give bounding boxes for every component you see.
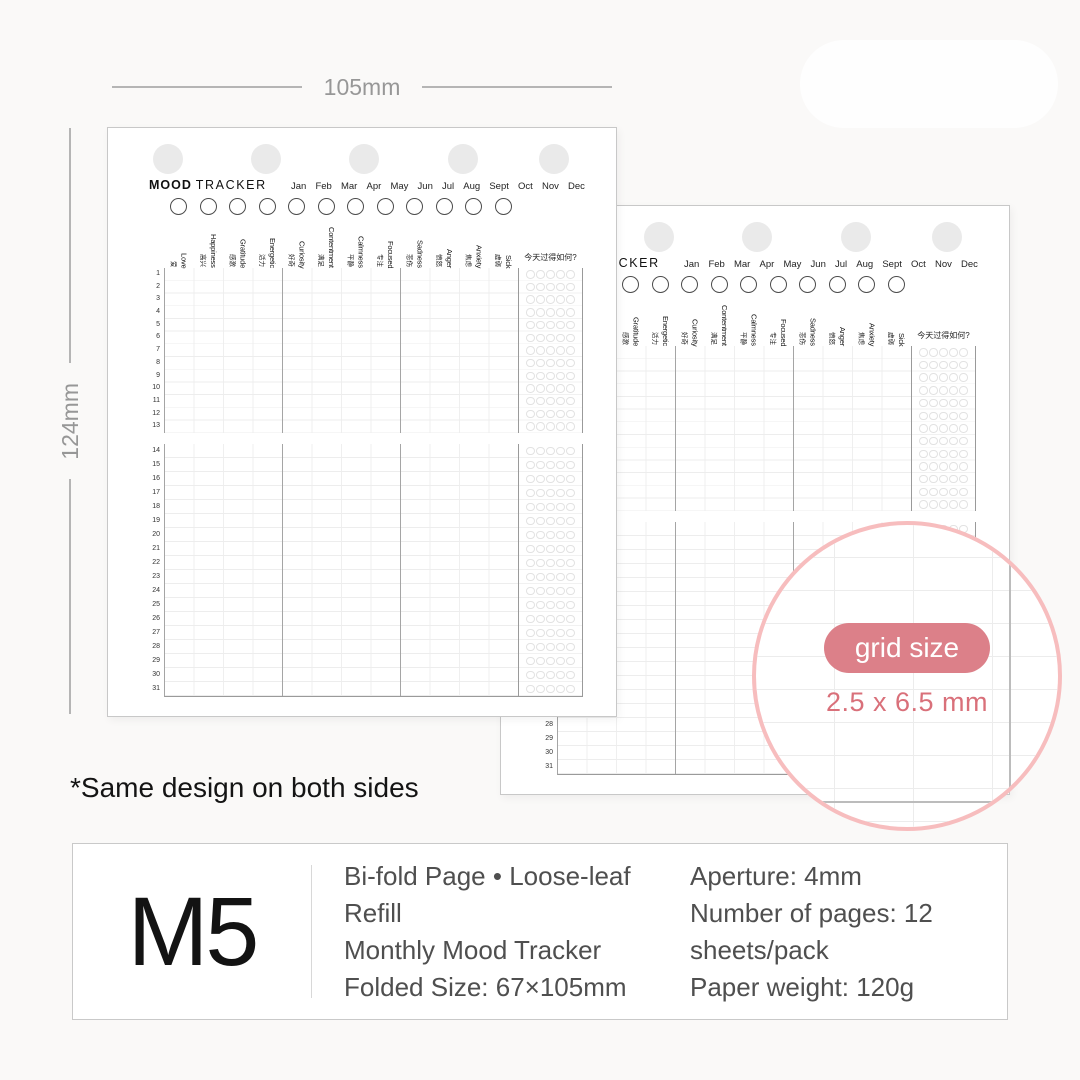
rating-circle — [566, 559, 575, 568]
mood-label-row: 爱Love高兴Happiness感激Gratitude活力Energetic好奇… — [164, 215, 518, 268]
punch-hole — [841, 222, 871, 252]
rating-circle — [556, 397, 565, 406]
rating-circle — [959, 475, 968, 484]
mood-column-label: 满足Contentment — [710, 305, 729, 346]
rating-circle — [949, 386, 958, 395]
rating-circle — [536, 475, 545, 484]
day-rating-circles — [912, 498, 975, 511]
day-number: 15 — [142, 458, 160, 472]
punch-hole — [448, 144, 478, 174]
rating-circle — [536, 545, 545, 554]
rating-circle — [546, 334, 555, 343]
month-circle — [858, 276, 875, 293]
rating-circle — [556, 334, 565, 343]
rating-circle — [929, 412, 938, 421]
rating-circle — [919, 361, 928, 370]
rating-circle — [526, 461, 535, 470]
mood-label-en: Love — [179, 253, 188, 268]
day-rating-column — [518, 444, 583, 697]
dimension-line — [422, 86, 612, 88]
rating-circle — [546, 422, 555, 431]
mood-column-label: 虚弱Sick — [494, 254, 513, 268]
rating-circle — [566, 545, 575, 554]
day-rating-circles — [912, 486, 975, 499]
day-number: 30 — [142, 668, 160, 682]
rating-circle — [566, 422, 575, 431]
rating-circle — [526, 657, 535, 666]
day-number: 27 — [142, 626, 160, 640]
mood-label-zh: 好奇 — [287, 254, 297, 267]
rating-circle — [566, 573, 575, 582]
rating-circle — [546, 295, 555, 304]
mood-label-en: Calmness — [749, 314, 758, 346]
rating-circle — [556, 295, 565, 304]
rating-circle — [939, 348, 948, 357]
mood-column-label: 高兴Happiness — [199, 234, 218, 268]
rating-circle — [546, 321, 555, 330]
rating-circle — [919, 348, 928, 357]
rating-circle — [566, 587, 575, 596]
mood-label-zh: 愤怒 — [435, 254, 445, 267]
rating-circle — [536, 573, 545, 582]
rating-circle — [546, 346, 555, 355]
rating-circle — [939, 412, 948, 421]
rating-circle — [536, 601, 545, 610]
mood-column-label: 愤怒Anger — [828, 327, 847, 346]
day-rating-circles — [519, 420, 582, 433]
magnified-grid — [756, 525, 1058, 827]
day-number: 20 — [142, 528, 160, 542]
month-label: Oct — [518, 181, 533, 192]
rating-circle — [929, 450, 938, 459]
rating-circle — [546, 475, 555, 484]
rating-circle — [919, 373, 928, 382]
day-rating-circles — [519, 458, 582, 472]
mood-label-en: Energetic — [661, 316, 670, 346]
month-circle — [495, 198, 512, 215]
day-rating-circles — [519, 268, 582, 281]
month-circle — [200, 198, 217, 215]
rating-circle — [949, 412, 958, 421]
month-label: Aug — [463, 181, 480, 192]
mood-label-en: Sadness — [415, 240, 424, 268]
rating-circle — [536, 283, 545, 292]
day-number: 12 — [142, 408, 160, 421]
rating-circle — [556, 447, 565, 456]
rating-circle — [526, 321, 535, 330]
rating-circle — [929, 386, 938, 395]
rating-circle — [536, 295, 545, 304]
rating-circle — [526, 475, 535, 484]
rating-circle — [929, 424, 938, 433]
rating-circle — [949, 424, 958, 433]
rating-circle — [566, 346, 575, 355]
rating-circle — [546, 559, 555, 568]
rating-circle — [959, 437, 968, 446]
rating-circle — [949, 500, 958, 509]
day-rating-circles — [519, 514, 582, 528]
day-number: 1 — [142, 268, 160, 281]
mood-label-en: Gratitude — [238, 239, 247, 268]
rating-circle — [959, 386, 968, 395]
rating-circle — [536, 321, 545, 330]
rating-circle — [919, 399, 928, 408]
size-code: M5 — [73, 876, 311, 988]
rating-circle — [536, 397, 545, 406]
rating-circle — [526, 410, 535, 419]
rating-circle — [546, 685, 555, 694]
punch-hole — [539, 144, 569, 174]
group-divider-line — [675, 346, 676, 511]
magnified-page-edge-vertical — [1009, 525, 1011, 801]
grid-size-value: 2.5 x 6.5 mm — [756, 687, 1058, 718]
rating-circle — [536, 422, 545, 431]
rating-circle — [556, 283, 565, 292]
rating-circle — [546, 629, 555, 638]
tracker-section-bottom: 141516171819202122232425262728293031 — [142, 444, 583, 697]
month-label: Sept — [489, 181, 509, 192]
rating-circle — [949, 462, 958, 471]
rating-circle — [526, 503, 535, 512]
rating-circle — [526, 283, 535, 292]
day-rating-circles — [519, 382, 582, 395]
mood-label-zh: 好奇 — [680, 332, 690, 345]
rating-circle — [949, 475, 958, 484]
grid-size-magnifier: grid size 2.5 x 6.5 mm — [752, 521, 1062, 831]
group-divider-line — [282, 444, 283, 696]
rating-circle — [566, 410, 575, 419]
day-number: 30 — [535, 746, 553, 760]
rating-circle — [526, 685, 535, 694]
mood-label-zh: 活力 — [651, 332, 661, 345]
day-rating-circles — [519, 542, 582, 556]
rating-circle — [929, 348, 938, 357]
month-label: Mar — [341, 181, 357, 192]
mood-column-label: 感激Gratitude — [621, 317, 640, 346]
rating-circle — [556, 503, 565, 512]
rating-circle — [919, 500, 928, 509]
punch-hole — [932, 222, 962, 252]
month-circle-row — [164, 198, 518, 215]
month-circle — [436, 198, 453, 215]
mood-column-label: 好奇Curiosity — [680, 319, 699, 346]
month-circle — [888, 276, 905, 293]
rating-circle — [536, 410, 545, 419]
rating-circle — [556, 359, 565, 368]
rating-circle — [526, 359, 535, 368]
divider — [311, 865, 312, 998]
day-number: 28 — [535, 718, 553, 732]
rating-circle — [526, 643, 535, 652]
day-rating-circles — [519, 612, 582, 626]
rating-circle — [566, 685, 575, 694]
mood-label-zh: 活力 — [258, 254, 268, 267]
day-number: 31 — [535, 760, 553, 774]
rating-circle — [949, 373, 958, 382]
rating-circle — [556, 308, 565, 317]
rating-circle — [566, 270, 575, 279]
month-circle — [377, 198, 394, 215]
rating-circle — [526, 447, 535, 456]
rating-circle — [949, 437, 958, 446]
group-divider-line — [282, 268, 283, 433]
rating-circle — [526, 559, 535, 568]
mood-column-label: 平静Calmness — [346, 236, 365, 268]
mood-label-zh: 虚弱 — [887, 332, 897, 345]
description-line: Folded Size: 67×105mm — [344, 969, 676, 1006]
rating-circle — [556, 671, 565, 680]
rating-circle — [546, 461, 555, 470]
rating-circle — [939, 500, 948, 509]
mood-label-en: Anger — [445, 249, 454, 268]
month-circle — [740, 276, 757, 293]
rating-circle — [919, 488, 928, 497]
month-label: Aug — [856, 259, 873, 270]
mood-label-zh: 感激 — [621, 332, 631, 345]
rating-circle — [919, 386, 928, 395]
day-number: 13 — [142, 420, 160, 433]
mood-column-label: 专注Focused — [769, 319, 788, 346]
month-label: Sept — [882, 259, 902, 270]
rating-circle — [959, 399, 968, 408]
group-divider-line — [400, 268, 401, 433]
mood-label-zh: 满足 — [710, 332, 720, 345]
rating-circle — [556, 587, 565, 596]
day-rating-circles — [519, 598, 582, 612]
mood-label-en: Energetic — [268, 238, 277, 268]
rating-circle — [939, 462, 948, 471]
month-row: JanFebMarAprMayJunJulAugSeptOctNovDec — [291, 181, 585, 192]
rating-circle — [546, 615, 555, 624]
rating-circle — [536, 503, 545, 512]
month-label: Jul — [442, 181, 454, 192]
tracker-grid — [164, 444, 518, 697]
month-circle — [711, 276, 728, 293]
mood-column-label: 悲伤Sadness — [405, 240, 424, 268]
mood-label-zh: 悲伤 — [405, 254, 415, 267]
magnified-page-edge-horizontal — [756, 801, 1009, 803]
rating-circle — [556, 573, 565, 582]
month-label: Mar — [734, 259, 750, 270]
dimension-line — [69, 128, 71, 363]
month-circle — [681, 276, 698, 293]
rating-circle — [566, 321, 575, 330]
day-rating-column — [518, 268, 583, 433]
tracker-page-front: MOOD TRACKERJanFebMarAprMayJunJulAugSept… — [107, 127, 617, 717]
mood-label-zh: 专注 — [376, 254, 386, 267]
rating-circle — [536, 587, 545, 596]
day-rating-circles — [519, 444, 582, 458]
mood-label-en: Calmness — [356, 236, 365, 268]
rating-circle — [526, 384, 535, 393]
month-label: Oct — [911, 259, 926, 270]
tracker-grid — [164, 268, 518, 433]
rating-circle — [526, 397, 535, 406]
rating-circle — [919, 475, 928, 484]
day-rating-circles — [519, 654, 582, 668]
mood-label-zh: 愤怒 — [828, 332, 838, 345]
mood-label-zh: 平静 — [346, 254, 356, 267]
rating-circle — [959, 424, 968, 433]
rating-circle — [566, 334, 575, 343]
rating-circle — [949, 361, 958, 370]
day-rating-circles — [519, 395, 582, 408]
mood-label-en: Anxiety — [474, 245, 483, 268]
day-rating-circles — [519, 500, 582, 514]
rating-circle — [919, 424, 928, 433]
rating-circle — [536, 447, 545, 456]
width-dimension-label: 105mm — [324, 74, 401, 101]
rating-circle — [546, 308, 555, 317]
rating-circle — [919, 450, 928, 459]
rating-circle — [536, 461, 545, 470]
rating-circle — [546, 384, 555, 393]
rating-circle — [546, 372, 555, 381]
rating-circle — [536, 334, 545, 343]
rating-circle — [566, 517, 575, 526]
day-number: 17 — [142, 486, 160, 500]
day-rating-circles — [519, 331, 582, 344]
day-rating-circles — [519, 306, 582, 319]
rating-circle — [546, 270, 555, 279]
rating-circle — [556, 657, 565, 666]
rating-circle — [546, 643, 555, 652]
rating-circle — [556, 270, 565, 279]
month-circle — [229, 198, 246, 215]
rating-circle — [526, 531, 535, 540]
day-rating-circles — [912, 359, 975, 372]
rating-circle — [939, 373, 948, 382]
rating-circle — [526, 346, 535, 355]
rating-circle — [566, 489, 575, 498]
mood-column-label: 好奇Curiosity — [287, 241, 306, 268]
month-label: Dec — [568, 181, 585, 192]
rating-circle — [526, 587, 535, 596]
month-label: Apr — [367, 181, 382, 192]
month-label: Jun — [811, 259, 826, 270]
rating-circle — [536, 308, 545, 317]
rating-circle — [566, 601, 575, 610]
day-rating-circles — [519, 319, 582, 332]
month-circle — [347, 198, 364, 215]
rating-circle — [939, 424, 948, 433]
day-number: 8 — [142, 357, 160, 370]
rating-circle — [939, 488, 948, 497]
rating-circle — [526, 489, 535, 498]
month-circle — [799, 276, 816, 293]
mood-label-en: Sadness — [808, 318, 817, 346]
day-rating-circles — [519, 486, 582, 500]
rating-circle — [566, 531, 575, 540]
rating-circle — [929, 373, 938, 382]
rating-circle — [929, 475, 938, 484]
spec-line: Number of pages: 12 sheets/pack — [690, 895, 992, 969]
rating-circle — [556, 615, 565, 624]
month-label: Feb — [708, 259, 724, 270]
rating-circle — [546, 503, 555, 512]
mood-label-zh: 专注 — [769, 332, 779, 345]
rating-circle — [526, 671, 535, 680]
page-title: MOOD TRACKER — [149, 178, 267, 192]
rating-circle — [556, 601, 565, 610]
rating-circle — [566, 447, 575, 456]
mood-label-en: Sick — [897, 333, 906, 346]
month-circle — [829, 276, 846, 293]
rating-circle — [526, 517, 535, 526]
day-number-column: 12345678910111213 — [142, 268, 164, 433]
rating-circle — [526, 422, 535, 431]
rating-circle — [536, 346, 545, 355]
rating-circle — [959, 412, 968, 421]
punch-hole — [644, 222, 674, 252]
rating-circle — [546, 573, 555, 582]
day-number: 16 — [142, 472, 160, 486]
day-number: 29 — [142, 654, 160, 668]
month-circle — [288, 198, 305, 215]
day-rating-circles — [912, 448, 975, 461]
description-line: Bi-fold Page • Loose-leaf Refill — [344, 858, 676, 932]
rating-circle — [556, 346, 565, 355]
day-rating-circles — [519, 584, 582, 598]
day-number: 18 — [142, 500, 160, 514]
rating-circle — [546, 447, 555, 456]
mood-label-en: Anxiety — [867, 323, 876, 346]
day-number: 31 — [142, 682, 160, 696]
rating-circle — [566, 461, 575, 470]
rating-circle — [536, 270, 545, 279]
rating-circle — [526, 573, 535, 582]
rating-circle — [929, 361, 938, 370]
rating-circle — [556, 545, 565, 554]
mood-label-en: Focused — [386, 241, 395, 268]
rating-circle — [556, 559, 565, 568]
month-label: May — [390, 181, 408, 192]
day-rating-circles — [912, 371, 975, 384]
rating-circle — [556, 410, 565, 419]
rating-circle — [939, 475, 948, 484]
rating-circle — [556, 422, 565, 431]
rating-circle — [556, 461, 565, 470]
month-label: Jan — [684, 259, 699, 270]
day-number: 4 — [142, 306, 160, 319]
rating-circle — [526, 601, 535, 610]
mood-column-label: 爱Love — [169, 253, 188, 268]
spec-line: Aperture: 4mm — [690, 858, 992, 895]
rating-circle — [556, 384, 565, 393]
rating-circle — [566, 475, 575, 484]
day-rating-circles — [519, 556, 582, 570]
mood-label-zh: 虚弱 — [494, 254, 504, 267]
day-number: 10 — [142, 382, 160, 395]
watermark-blob — [800, 40, 1058, 128]
day-rating-circles — [912, 422, 975, 435]
rating-circle — [939, 361, 948, 370]
rating-circle — [566, 671, 575, 680]
rating-circle — [959, 500, 968, 509]
rating-circle — [536, 359, 545, 368]
rating-circle — [546, 517, 555, 526]
day-rating-circles — [519, 357, 582, 370]
month-row: JanFebMarAprMayJunJulAugSeptOctNovDec — [684, 259, 978, 270]
day-number: 24 — [142, 584, 160, 598]
rating-circle — [959, 348, 968, 357]
rating-circle — [546, 587, 555, 596]
rating-circle — [566, 643, 575, 652]
rating-circle — [536, 643, 545, 652]
day-rating-circles — [519, 528, 582, 542]
month-label: Jan — [291, 181, 306, 192]
mood-label-en: Happiness — [209, 234, 218, 268]
